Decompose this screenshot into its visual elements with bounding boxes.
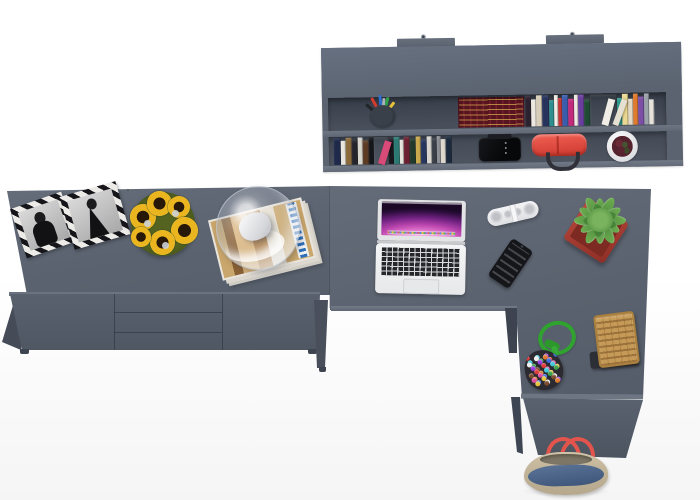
laptop-wallpaper [381,201,462,237]
pen-cup [368,99,398,128]
bag-denim-panel [528,464,605,488]
desk-sideboard-seam [329,186,330,308]
tote-bag [524,452,608,495]
bead-icon [526,362,532,368]
shelf-top-board [321,42,682,98]
scene [0,0,700,500]
drawer-seam [114,312,222,313]
book-row-lower [334,136,467,165]
laptop-keyboard-deck [375,243,466,295]
portrait-body [30,218,59,248]
book-spine [649,99,654,124]
laptop [375,199,467,295]
pedestal-side [511,397,523,456]
glass-reflection [223,225,288,267]
book-row-upper [525,93,666,126]
encyclopedia-book-set [458,97,525,128]
sunflower-icon [131,227,151,247]
plant-center [587,208,613,232]
camera-dot [505,147,507,149]
babys-breath-sprig [144,220,151,227]
door-seam [222,294,223,351]
potted-plant-foliage [558,180,642,260]
wicker-basket [593,311,640,369]
glass-dome-lamp [216,186,300,270]
dock-icons [387,230,455,235]
menu-bar [382,201,462,205]
succulent-plant [612,136,633,157]
shelf-body [321,42,683,172]
furniture-foot [319,367,326,372]
portrait-body [82,205,109,239]
laptop-screen [377,199,466,242]
furniture-foot [308,349,317,354]
bw-portrait-photo [67,188,123,242]
speaker-grille-icon [522,202,536,216]
sideboard-front [8,294,320,351]
sunflower-bouquet [128,190,198,258]
laptop-trackpad [403,279,439,295]
desk-inner-panel [505,308,517,353]
bag-opening [540,454,592,465]
bead-icon [544,380,550,386]
babys-breath-sprig [172,210,179,217]
desk-side-panel [314,300,328,368]
babys-breath-sprig [162,242,169,249]
camera-dot [505,152,507,154]
book-spine [446,136,452,163]
speaker-grille-icon [489,210,503,224]
drawer-seam [114,332,222,333]
laptop-keyboard [381,247,460,277]
bead-icon [553,352,559,358]
furniture-foot [20,349,29,354]
sunflower-icon [171,217,198,244]
bead-icon [533,356,539,362]
cup [370,105,395,127]
door-seam [114,294,115,351]
desk-front-edge [331,306,517,311]
black-camera-object [479,137,521,162]
camera-dot [505,142,507,144]
bag-handle [546,152,580,172]
wall-shelf [321,30,683,172]
portrait-head [85,197,98,210]
